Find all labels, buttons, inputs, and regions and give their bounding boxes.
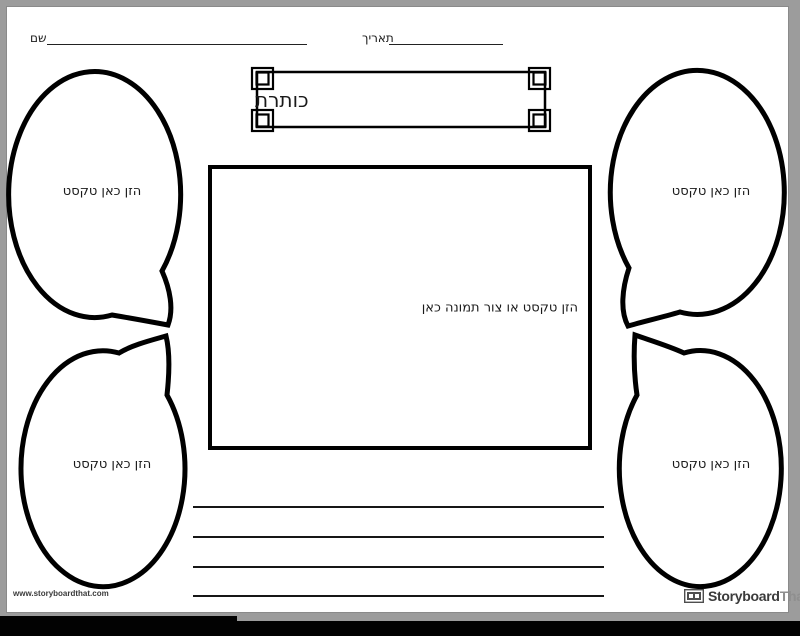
image-box[interactable]: הזן טקסט או צור תמונה כאן [208,165,592,450]
logo-text-primary: Storyboard [708,588,780,604]
date-label: תאריך [362,31,394,45]
worksheet-canvas: שם תאריך כותרת הזן טקסט או צור תמונה כאן… [0,0,800,636]
speech-bubble-bottom-left[interactable] [16,322,192,590]
writing-line-1[interactable] [193,506,604,508]
speech-bubble-bottom-right[interactable] [612,322,788,590]
bubble-placeholder-bottom-left[interactable]: הזן כאן טקסט [37,457,187,472]
bubble-placeholder-top-left[interactable]: הזן כאן טקסט [27,184,177,199]
speech-bubble-top-right[interactable] [608,64,788,336]
logo-text-secondary: That [780,588,800,604]
bottom-bar [0,621,800,636]
footer-url: www.storyboardthat.com [13,589,109,598]
speech-bubble-top-left[interactable] [4,64,184,336]
name-label: שם [30,31,46,45]
date-blank-line[interactable] [389,44,503,45]
name-blank-line[interactable] [47,44,307,45]
title-text[interactable]: כותרת [255,72,533,127]
storyboardthat-logo: StoryboardThat [684,588,800,604]
bubble-placeholder-bottom-right[interactable]: הזן כאן טקסט [636,457,786,472]
writing-line-3[interactable] [193,566,604,568]
writing-line-2[interactable] [193,536,604,538]
bubble-placeholder-top-right[interactable]: הזן כאן טקסט [636,184,786,199]
image-box-placeholder[interactable]: הזן טקסט או צור תמונה כאן [422,300,578,315]
writing-line-4[interactable] [193,595,604,597]
storyboardthat-logo-icon [684,588,704,604]
